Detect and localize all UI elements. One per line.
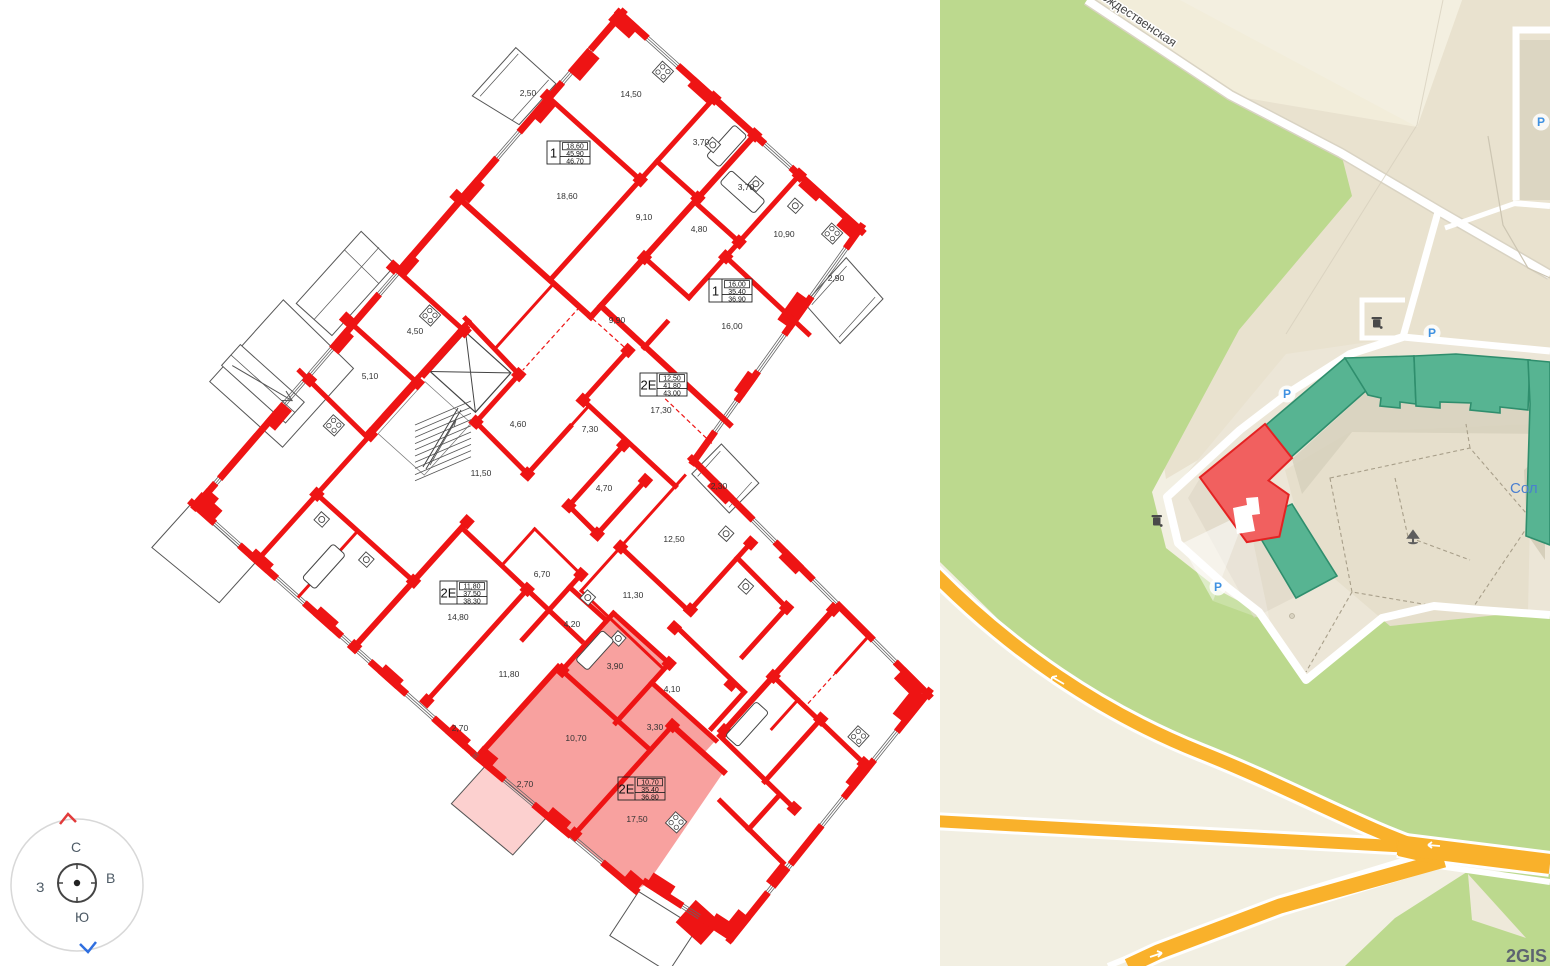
svg-text:2,30: 2,30 (711, 481, 728, 491)
svg-text:4,60: 4,60 (510, 419, 527, 429)
svg-text:2,70: 2,70 (452, 723, 469, 733)
svg-text:10,70: 10,70 (641, 780, 659, 787)
svg-text:43,00: 43,00 (663, 391, 681, 398)
svg-text:37,50: 37,50 (463, 591, 481, 598)
svg-text:2GIS: 2GIS (1506, 946, 1547, 966)
svg-text:3,70: 3,70 (738, 182, 755, 192)
svg-text:6,70: 6,70 (534, 569, 551, 579)
svg-text:18,60: 18,60 (556, 191, 578, 201)
svg-text:10,70: 10,70 (565, 733, 587, 743)
svg-text:Р: Р (1283, 387, 1291, 401)
svg-text:41,80: 41,80 (663, 383, 681, 390)
svg-text:9,10: 9,10 (636, 212, 653, 222)
svg-text:36,90: 36,90 (728, 297, 746, 304)
svg-text:7,30: 7,30 (582, 424, 599, 434)
svg-text:Сол: Сол (1510, 480, 1538, 497)
svg-text:14,80: 14,80 (447, 612, 469, 622)
svg-text:10,90: 10,90 (773, 229, 795, 239)
svg-text:14,50: 14,50 (620, 89, 642, 99)
svg-text:3,90: 3,90 (607, 661, 624, 671)
svg-text:16,00: 16,00 (728, 282, 746, 289)
svg-text:В: В (106, 870, 115, 886)
svg-text:2Е: 2Е (619, 782, 635, 797)
svg-text:1: 1 (712, 284, 719, 299)
svg-text:9,90: 9,90 (609, 315, 626, 325)
svg-text:4,10: 4,10 (664, 684, 681, 694)
svg-text:38,30: 38,30 (463, 599, 481, 606)
svg-text:11,80: 11,80 (499, 669, 520, 679)
svg-text:С: С (71, 839, 81, 855)
svg-text:4,80: 4,80 (691, 224, 708, 234)
svg-text:2Е: 2Е (641, 378, 657, 393)
svg-text:12,50: 12,50 (663, 376, 681, 383)
svg-text:3,30: 3,30 (647, 722, 664, 732)
svg-text:45,90: 45,90 (566, 151, 584, 158)
svg-text:17,30: 17,30 (650, 405, 672, 415)
svg-text:35,40: 35,40 (641, 787, 659, 794)
svg-text:4,70: 4,70 (596, 483, 613, 493)
svg-text:Р: Р (1428, 326, 1436, 340)
svg-text:11,50: 11,50 (471, 468, 492, 478)
svg-text:36,80: 36,80 (641, 795, 659, 802)
svg-text:4,50: 4,50 (407, 326, 424, 336)
svg-text:16,00: 16,00 (721, 321, 743, 331)
svg-text:2,90: 2,90 (828, 273, 845, 283)
svg-text:35,40: 35,40 (728, 289, 746, 296)
svg-text:3,70: 3,70 (693, 137, 710, 147)
svg-text:46,70: 46,70 (566, 159, 584, 166)
svg-text:5,10: 5,10 (362, 371, 379, 381)
svg-text:З: З (36, 879, 44, 895)
svg-text:2,70: 2,70 (517, 779, 534, 789)
svg-text:18,60: 18,60 (566, 144, 584, 151)
svg-text:Р: Р (1214, 580, 1222, 594)
svg-text:11,30: 11,30 (623, 590, 644, 600)
svg-text:11,80: 11,80 (464, 584, 481, 591)
svg-text:Ю: Ю (75, 909, 89, 925)
svg-text:12,50: 12,50 (663, 534, 685, 544)
svg-text:1: 1 (550, 146, 557, 161)
svg-text:17,50: 17,50 (626, 814, 648, 824)
svg-text:4,20: 4,20 (564, 619, 581, 629)
svg-text:2Е: 2Е (441, 586, 457, 601)
svg-text:Р: Р (1537, 115, 1545, 129)
svg-text:2,50: 2,50 (520, 88, 537, 98)
